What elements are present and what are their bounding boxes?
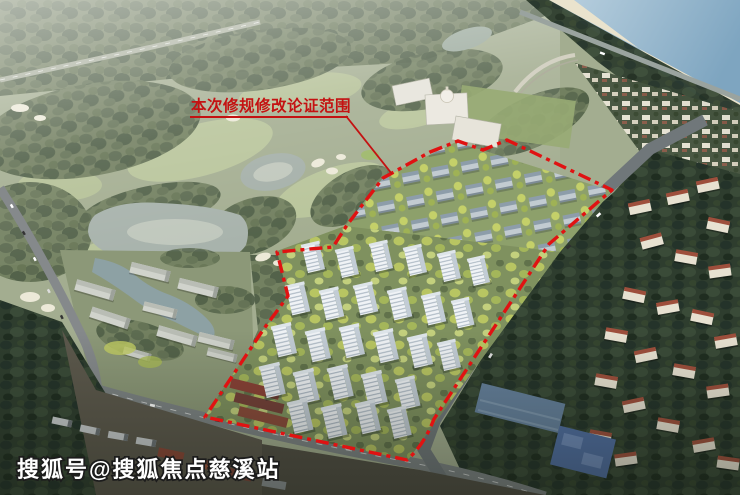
palace-dome [441,90,454,103]
aerial-site-plan: 本次修规修改论证范围 搜狐号@搜狐焦点慈溪站 [0,0,740,495]
aerial-rendering: 本次修规修改论证范围 搜狐号@搜狐焦点慈溪站 [0,0,740,495]
annotation-label: 本次修规修改论证范围 [191,96,351,115]
watermark-label: 搜狐号@搜狐焦点慈溪站 [17,457,280,482]
